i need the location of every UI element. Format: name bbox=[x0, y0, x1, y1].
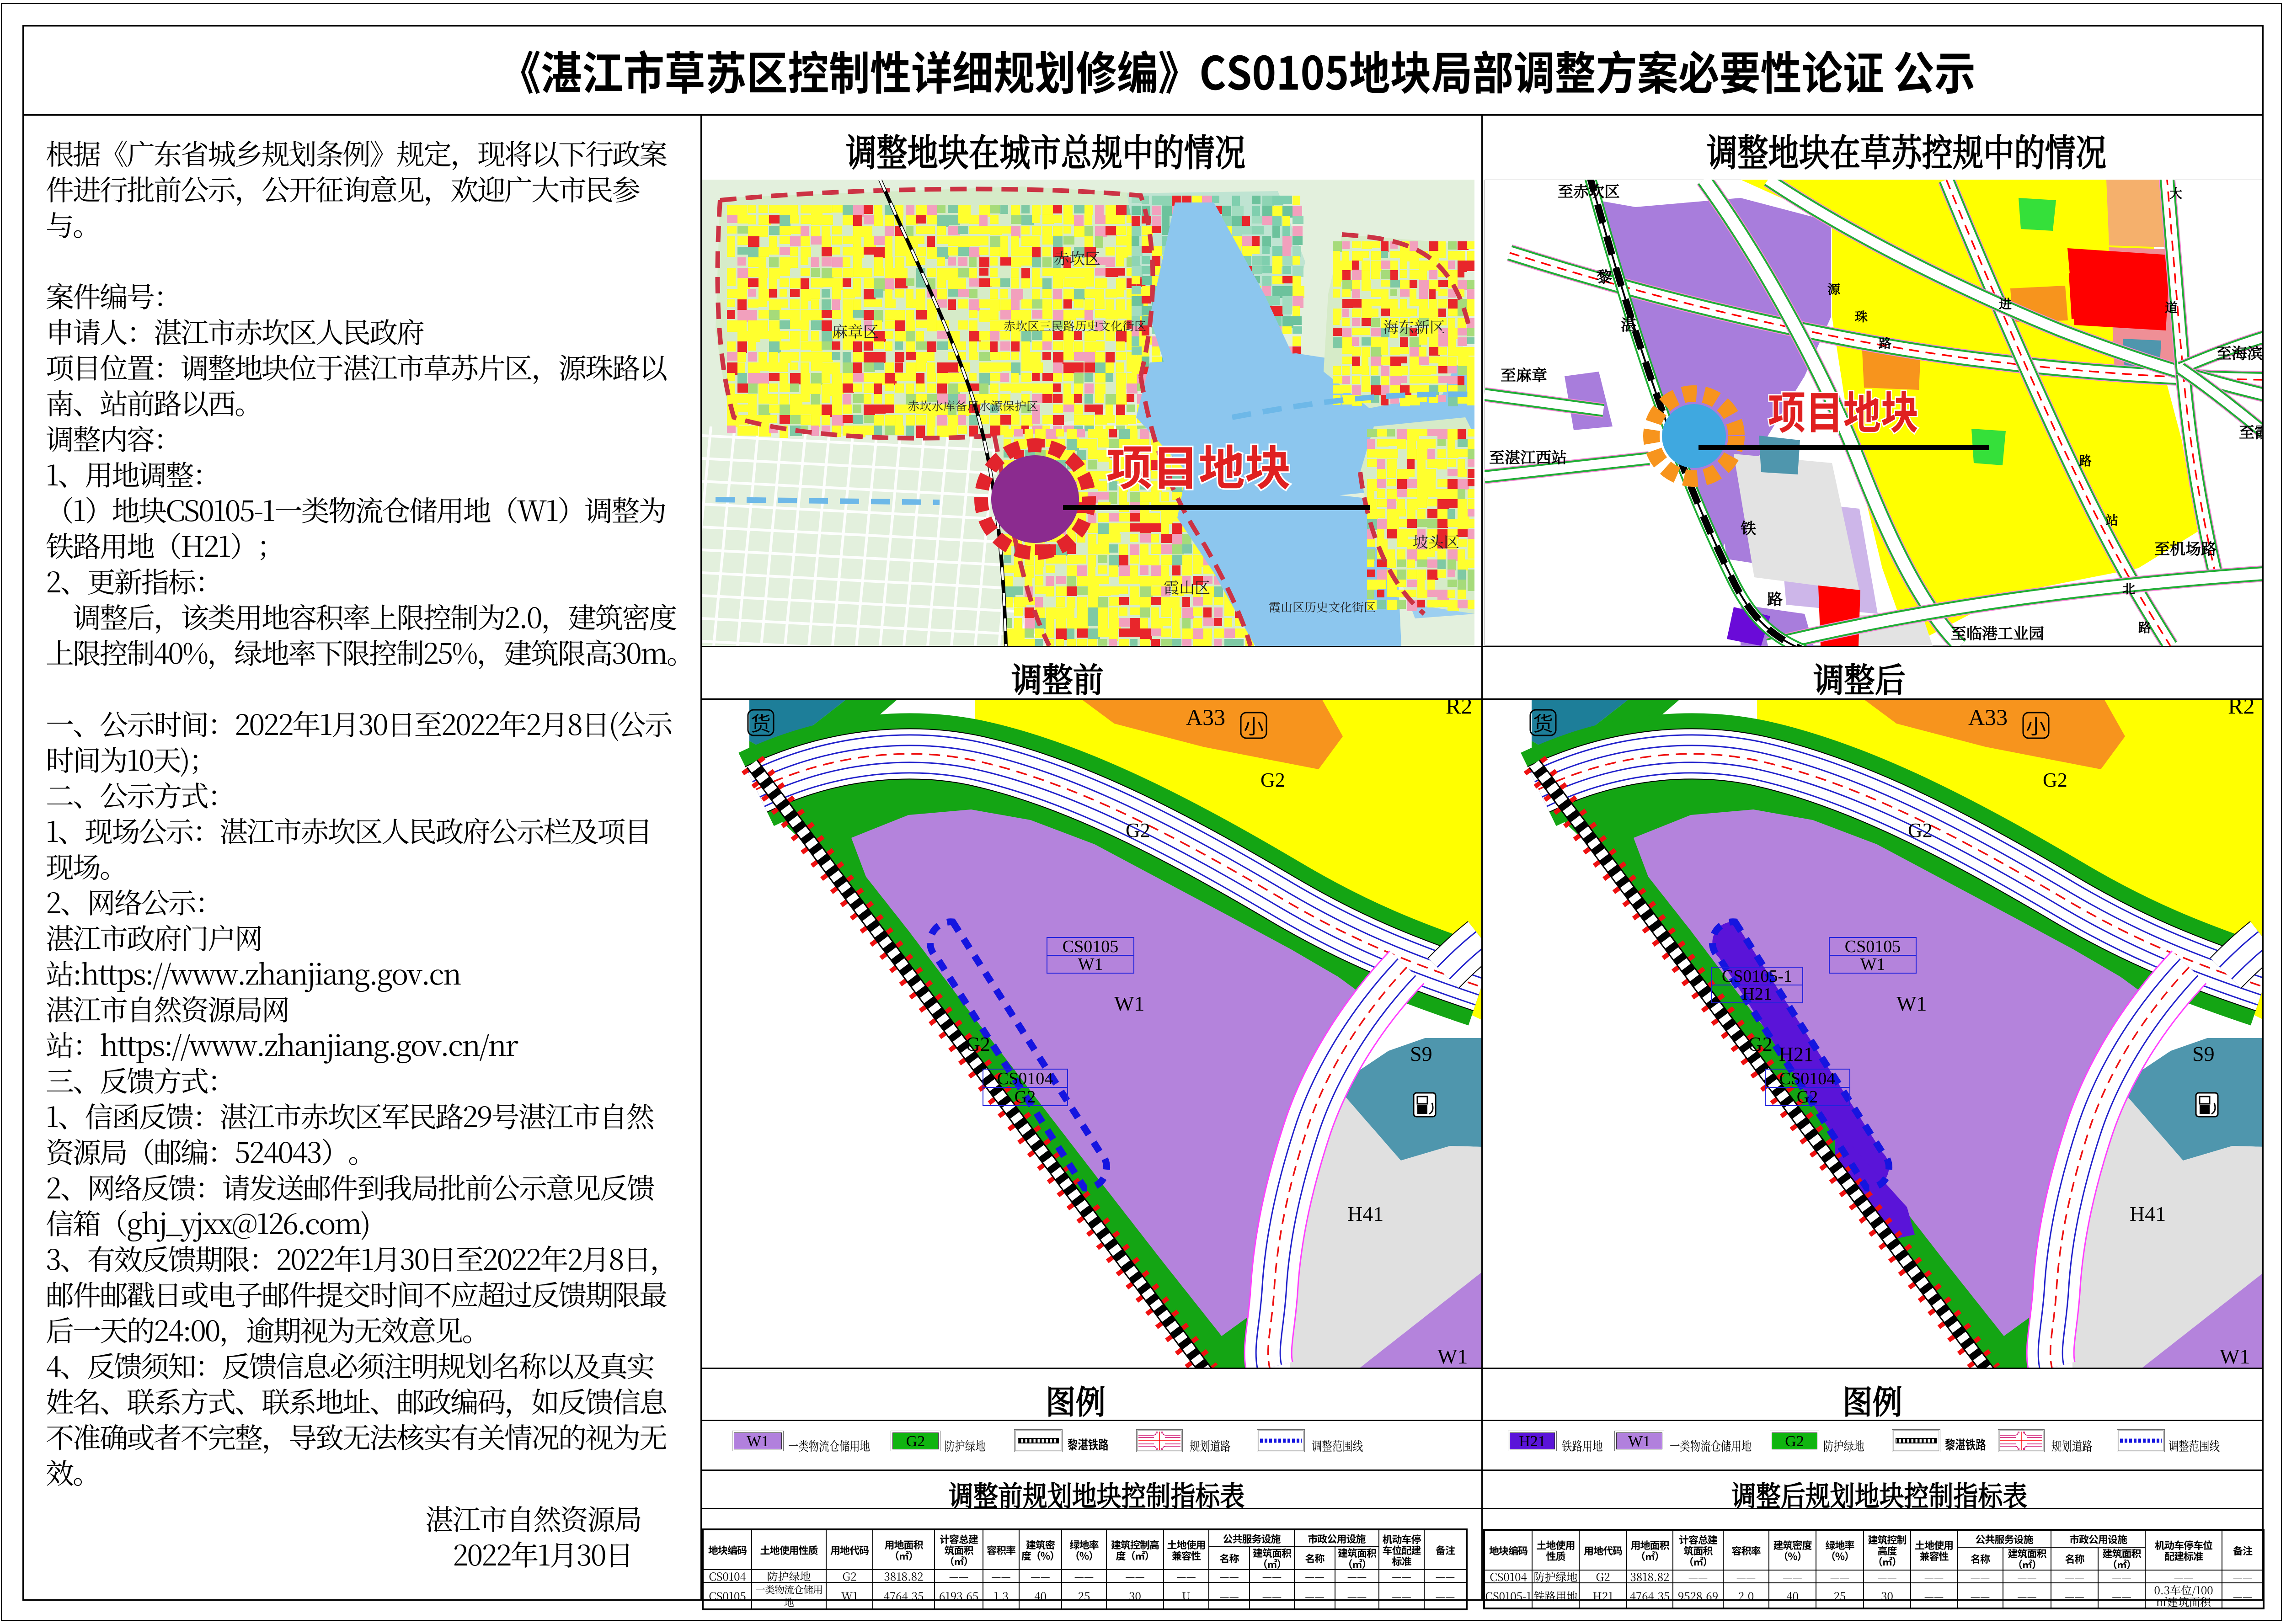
svg-text:CS0105: CS0105 bbox=[1063, 937, 1118, 956]
svg-text:路: 路 bbox=[2079, 451, 2092, 469]
svg-text:坡头区: 坡头区 bbox=[1413, 530, 1459, 552]
svg-text:G2: G2 bbox=[1908, 819, 1933, 841]
svg-text:黎: 黎 bbox=[1597, 265, 1612, 287]
svg-text:G2: G2 bbox=[1797, 1087, 1818, 1107]
svg-text:R2: R2 bbox=[1446, 700, 1472, 719]
svg-text:至麻章: 至麻章 bbox=[1501, 363, 1547, 385]
svg-text:进: 进 bbox=[1999, 294, 2012, 313]
svg-text:大: 大 bbox=[2169, 184, 2182, 202]
svg-text:项目地块: 项目地块 bbox=[1768, 377, 1918, 442]
svg-text:路: 路 bbox=[1879, 334, 1891, 352]
svg-text:S9: S9 bbox=[2192, 1042, 2215, 1065]
svg-text:道: 道 bbox=[2165, 298, 2178, 316]
svg-text:H21: H21 bbox=[1779, 1043, 1814, 1065]
svg-text:W1: W1 bbox=[1896, 992, 1927, 1015]
svg-text:霞山区历史文化街区: 霞山区历史文化街区 bbox=[1269, 598, 1376, 615]
svg-text:CS0105-1: CS0105-1 bbox=[1722, 967, 1792, 986]
svg-text:霞山区: 霞山区 bbox=[1164, 575, 1210, 598]
svg-text:货: 货 bbox=[1533, 713, 1553, 735]
svg-text:A33: A33 bbox=[1968, 704, 2008, 730]
svg-text:站: 站 bbox=[2105, 511, 2118, 529]
svg-text:W1: W1 bbox=[1114, 992, 1144, 1015]
svg-text:赤坎区: 赤坎区 bbox=[1054, 246, 1100, 269]
svg-text:H21: H21 bbox=[1742, 985, 1772, 1004]
svg-text:CS0105: CS0105 bbox=[1845, 937, 1901, 956]
svg-text:海东新区: 海东新区 bbox=[1383, 315, 1445, 337]
svg-text:湛: 湛 bbox=[1621, 313, 1636, 335]
svg-text:CS0104: CS0104 bbox=[1779, 1069, 1835, 1088]
svg-text:路: 路 bbox=[1767, 587, 1783, 609]
svg-text:A33: A33 bbox=[1186, 704, 1225, 730]
svg-text:W1: W1 bbox=[1078, 955, 1103, 974]
svg-text:北: 北 bbox=[2122, 579, 2135, 597]
svg-text:W1: W1 bbox=[1437, 1345, 1468, 1368]
svg-text:W1: W1 bbox=[2220, 1345, 2250, 1368]
svg-text:至海滨: 至海滨 bbox=[2216, 341, 2263, 363]
svg-text:G2: G2 bbox=[1748, 1033, 1773, 1055]
svg-text:H41: H41 bbox=[2130, 1202, 2166, 1225]
svg-text:源: 源 bbox=[1827, 280, 1841, 298]
svg-text:麻章区: 麻章区 bbox=[832, 319, 879, 342]
svg-text:路: 路 bbox=[2138, 618, 2151, 636]
svg-text:货: 货 bbox=[751, 713, 771, 735]
svg-text:G2: G2 bbox=[1015, 1087, 1036, 1107]
svg-text:小: 小 bbox=[1244, 716, 1264, 738]
svg-text:W1: W1 bbox=[1860, 955, 1885, 974]
svg-text:赤坎水库备用水源保护区: 赤坎水库备用水源保护区 bbox=[908, 397, 1038, 414]
svg-text:至霞: 至霞 bbox=[2239, 420, 2264, 442]
svg-text:项目地块: 项目地块 bbox=[1106, 430, 1291, 499]
svg-text:珠: 珠 bbox=[1855, 307, 1868, 325]
svg-text:至临港工业园: 至临港工业园 bbox=[1951, 621, 2044, 644]
svg-text:G2: G2 bbox=[1126, 819, 1150, 841]
svg-text:至赤坎区: 至赤坎区 bbox=[1558, 180, 1620, 202]
svg-text:至机场路: 至机场路 bbox=[2154, 537, 2217, 559]
svg-text:S9: S9 bbox=[1410, 1042, 1432, 1065]
svg-text:G2: G2 bbox=[1261, 769, 1285, 791]
svg-text:H41: H41 bbox=[1347, 1202, 1383, 1225]
svg-text:G2: G2 bbox=[2043, 769, 2067, 791]
svg-text:R2: R2 bbox=[2228, 700, 2254, 719]
svg-text:赤坎区三民路历史文化街区: 赤坎区三民路历史文化街区 bbox=[1004, 317, 1146, 334]
svg-text:铁: 铁 bbox=[1740, 516, 1756, 538]
svg-text:小: 小 bbox=[2026, 716, 2046, 738]
svg-text:G2: G2 bbox=[966, 1033, 990, 1055]
svg-text:CS0104: CS0104 bbox=[997, 1069, 1053, 1088]
svg-text:至湛江西站: 至湛江西站 bbox=[1489, 445, 1567, 468]
